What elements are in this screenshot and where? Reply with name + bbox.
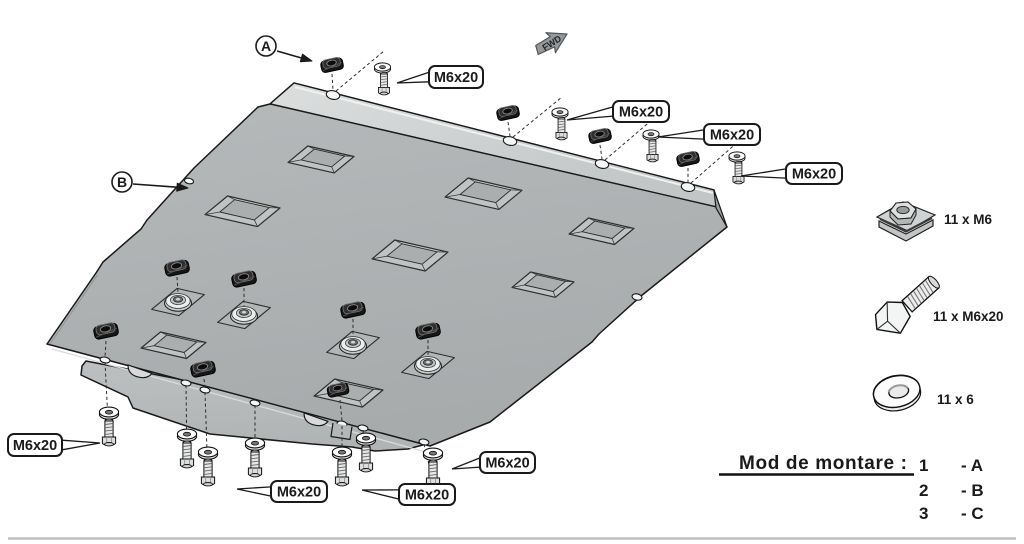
svg-text:11 x M6x20: 11 x M6x20	[933, 309, 1004, 324]
svg-text:B: B	[117, 174, 127, 190]
svg-text:1: 1	[919, 456, 928, 475]
svg-text:M6x20: M6x20	[710, 128, 754, 144]
svg-text:M6x20: M6x20	[619, 105, 663, 121]
svg-text:- C: - C	[961, 504, 984, 523]
svg-text:- A: - A	[961, 456, 983, 475]
svg-text:- B: - B	[961, 481, 984, 500]
svg-text:A: A	[261, 38, 271, 54]
svg-text:M6x20: M6x20	[485, 456, 529, 472]
svg-text:3: 3	[919, 504, 928, 523]
svg-text:M6x20: M6x20	[405, 488, 449, 504]
svg-text:2: 2	[919, 481, 928, 500]
svg-text:M6x20: M6x20	[434, 70, 478, 86]
svg-text:M6x20: M6x20	[792, 167, 836, 183]
svg-text:M6x20: M6x20	[277, 485, 321, 501]
svg-text:Mod de montare :: Mod de montare :	[739, 453, 907, 474]
svg-text:11 x M6: 11 x M6	[944, 212, 993, 227]
svg-text:M6x20: M6x20	[13, 438, 57, 454]
svg-text:11 x 6: 11 x 6	[937, 392, 974, 407]
